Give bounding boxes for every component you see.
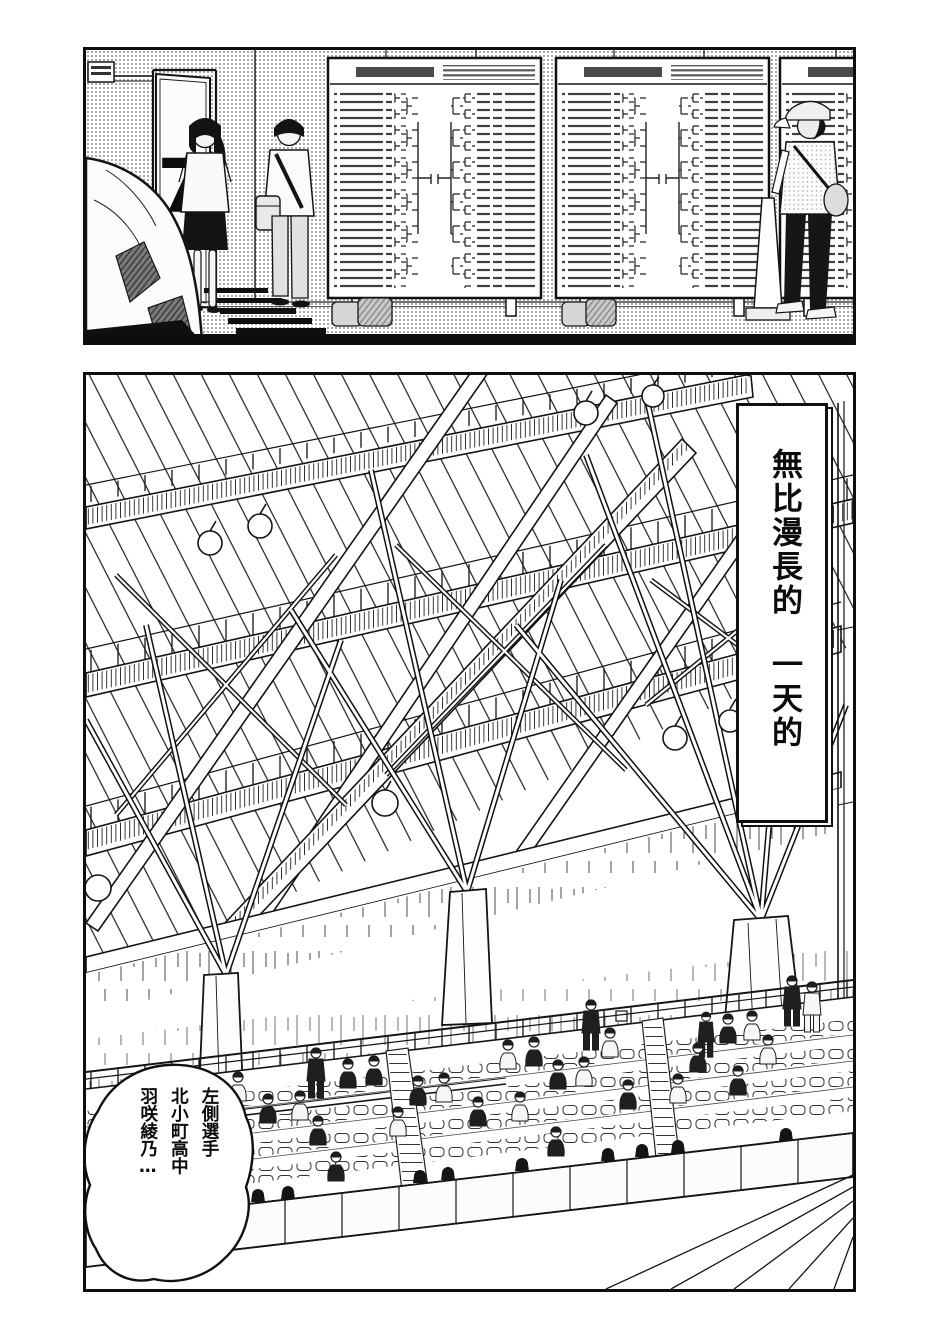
manga-page: 7 — [0, 0, 945, 1344]
speech-bubble-text: 左側選手 北小町高中 羽咲綾乃… — [114, 1087, 228, 1272]
panel-hallway: 7 — [83, 47, 856, 345]
bubble-line: 左側選手 — [193, 1087, 224, 1272]
bubble-line: 羽咲綾乃… — [132, 1087, 163, 1272]
hallway-art: 7 — [86, 50, 853, 342]
panel-gymnasium: 無比漫長的一天的 左側選手 北小町高中 羽咲綾乃… — [83, 372, 856, 1292]
wall-sign — [88, 62, 153, 82]
person-shoulder-bag — [256, 119, 314, 308]
bubble-line: 北小町高中 — [163, 1087, 194, 1272]
caption-box: 無比漫長的一天的 — [736, 403, 828, 823]
caption-line: 無比漫長的 — [766, 448, 802, 618]
caption-text: 無比漫長的一天的 — [767, 448, 801, 808]
caption-line: 一天的 — [766, 648, 802, 750]
floor-band — [86, 334, 853, 342]
